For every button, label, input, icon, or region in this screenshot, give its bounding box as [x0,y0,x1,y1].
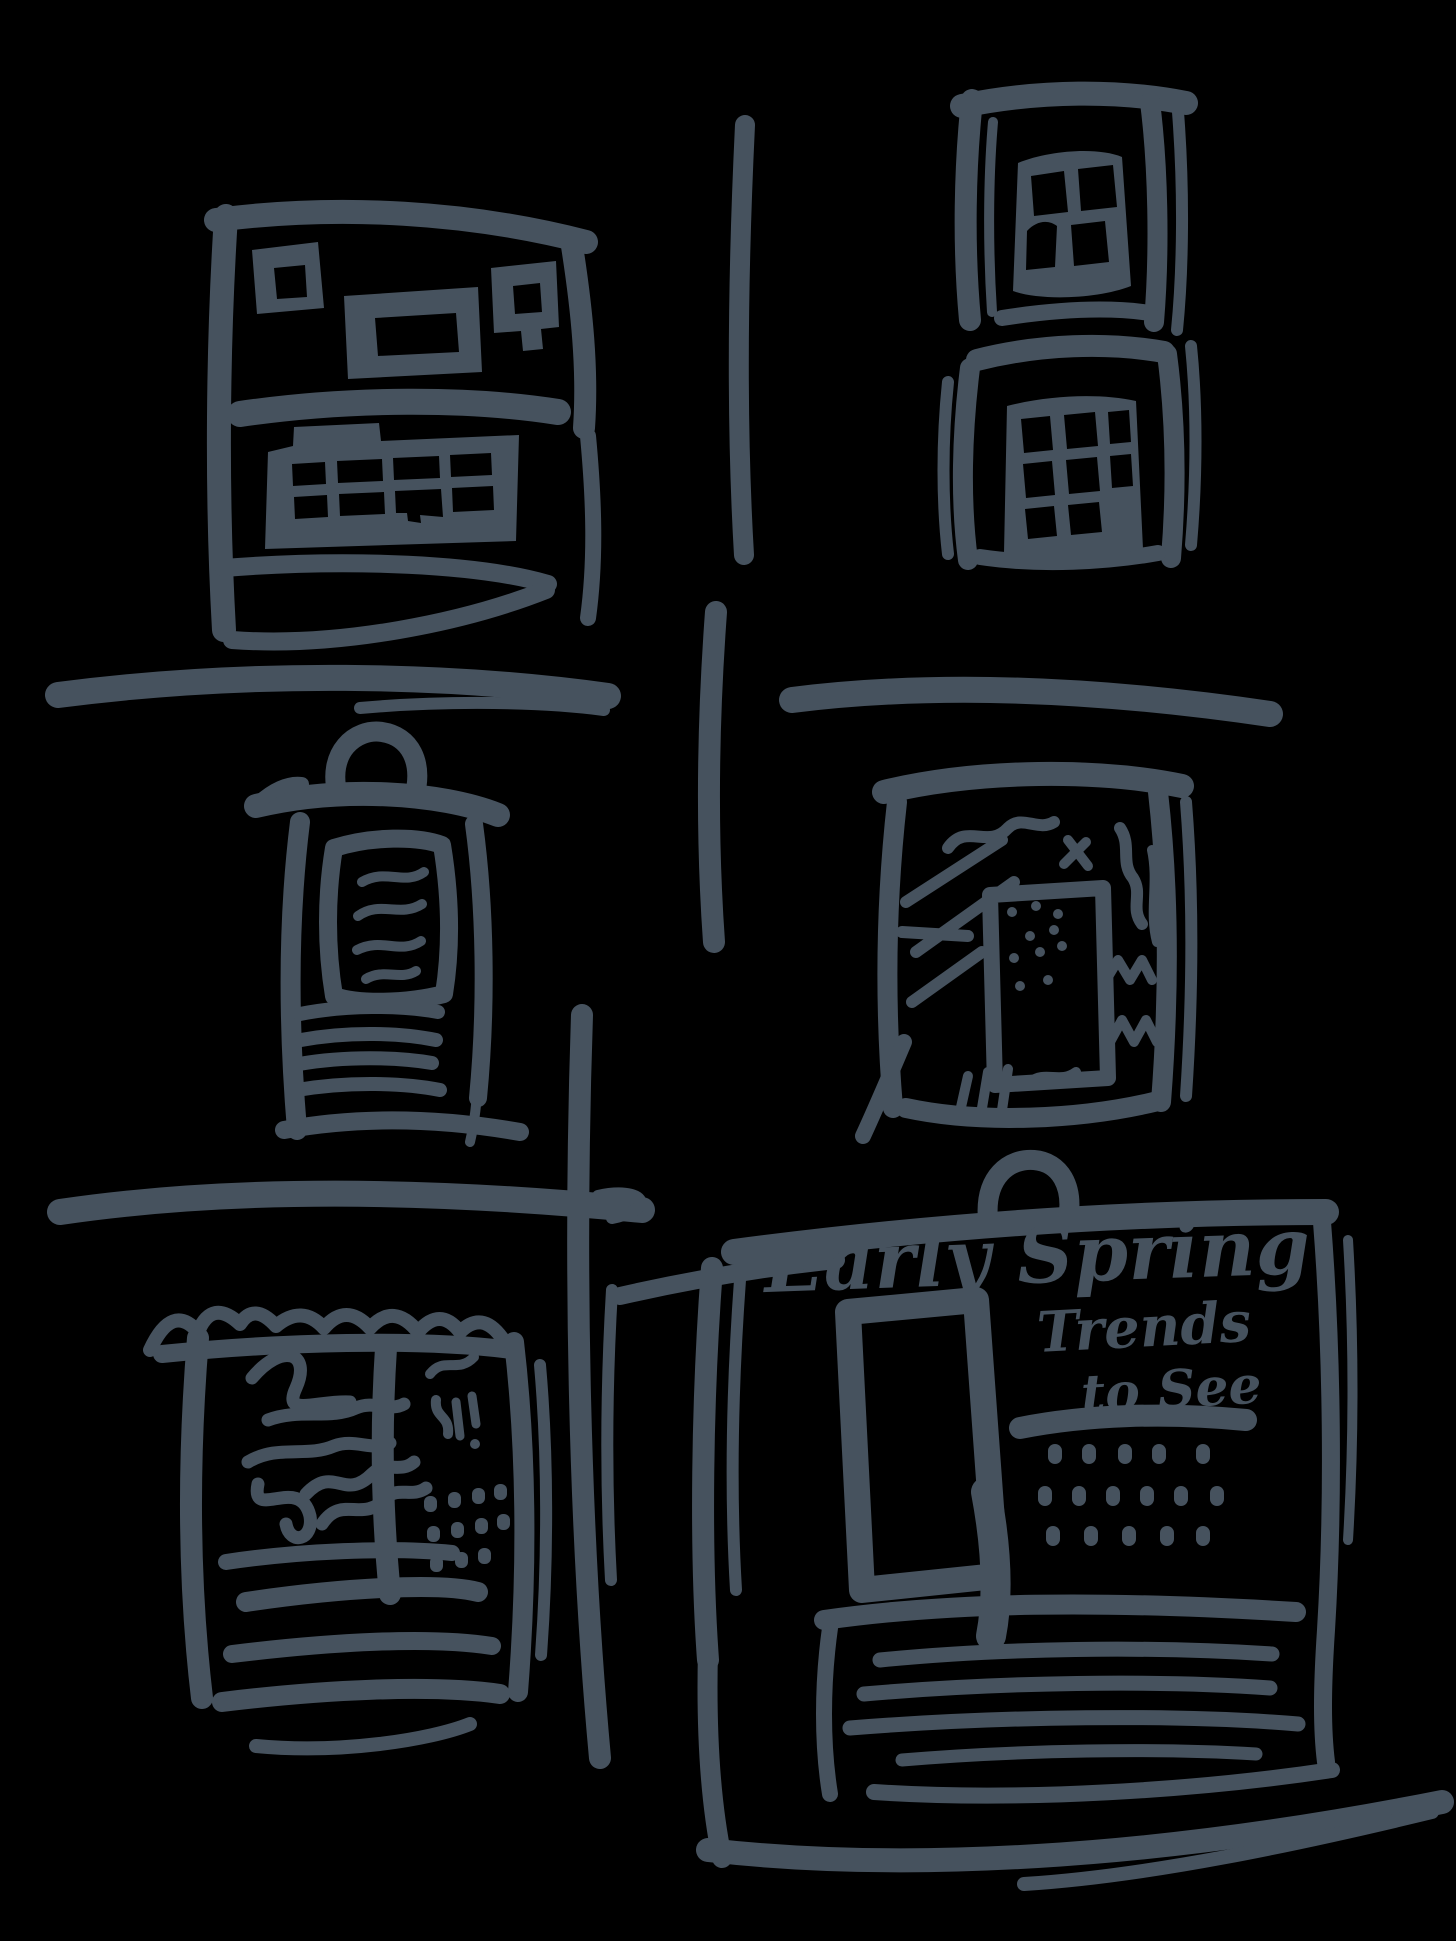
card-left-edge-double [989,122,993,312]
window-grid-2x2 [1013,151,1131,297]
dot-rows [1038,1444,1224,1546]
moodboard-center-card [990,888,1108,1085]
board-right-edge [514,1342,524,1692]
board-right-edge [1158,792,1167,1102]
board-top-bar [162,1343,512,1354]
board-left-edge [191,1338,202,1698]
frame-bottom-stroke-2 [232,590,546,641]
board-top-edge [884,774,1182,792]
card-bottom-edge [874,1770,1332,1796]
right-column-squiggles [430,1357,480,1449]
grid-dividers [58,125,1270,1758]
board-bottom-edge [906,1101,1158,1118]
grid-card-upper [962,94,1186,330]
sketch-stacked-grid-cards-wireframe [944,94,1196,562]
subhead-bar [1020,1416,1246,1428]
card-left-edge-double [944,382,949,554]
frame-right-edge-lower [588,436,593,618]
tag-top-bar [256,794,498,815]
layout-right-edge [1322,1222,1331,1762]
vertical-divider-bottom-double [607,1290,612,1580]
card-left-edge [824,1628,830,1794]
placeholder-square-left-icon [252,242,324,314]
tag-right-edge [474,824,484,1098]
grid-card-lower [944,346,1196,562]
horizontal-divider-left-1-double [360,703,604,710]
sketch-sheet: Early Spring Trends to See [0,0,1456,1941]
vertical-divider-middle [709,612,716,942]
vertical-divider-top [739,125,745,555]
layout-right-edge-double [1348,1240,1353,1540]
sketch-header-table-wireframe [216,212,593,642]
frame-middle-bar [240,402,558,414]
horizontal-divider-left-1 [58,678,608,696]
card-text-line [880,1649,1272,1660]
sketch-hanging-tag-wireframe [256,732,520,1142]
horizontal-divider-right-1 [792,690,1270,714]
window-grid-3x3 [1004,396,1143,558]
sketch-scalloped-board-wireframe [150,1313,546,1749]
layout-left-edge-lower [708,1650,722,1858]
frame-bottom-stroke-1 [224,563,548,584]
sketch-moodboard-wireframe [863,774,1191,1136]
image-placeholder-scribble [357,872,424,979]
wireframe-sketch-canvas: Early Spring Trends to See [0,0,1456,1941]
card-text-line [902,1751,1256,1760]
card-top-edge [977,346,1164,360]
vertical-divider-bottom [578,1015,600,1758]
cursive-doodle-scribble [248,1355,426,1537]
horizontal-divider-left-2 [60,1194,642,1212]
card-left-edge [966,100,972,320]
frame-right-edge [572,246,585,428]
card-right-edge [1167,354,1174,558]
card-text-line [864,1683,1270,1694]
frame-top-edge [216,212,586,242]
lined-text-card [824,1604,1332,1795]
board-right-edge-double [540,1365,546,1655]
table-grid [265,423,519,549]
placeholder-flag-right-icon [491,261,559,351]
card-right-edge-double [1177,112,1182,330]
layout-left-edge [703,1268,712,1660]
board-right-edge-double [1186,802,1191,1096]
placeholder-rect-center-icon [344,287,482,379]
hero-image-placeholder [848,1300,996,1590]
moodboard-center-dots [1007,901,1067,991]
card-left-edge [963,368,970,560]
layout-left-edge-double [733,1280,740,1590]
bottom-text-lines [222,1587,500,1748]
card-top-edge [824,1604,1296,1620]
card-right-edge-double [1191,346,1196,545]
headline-handwriting-line2: Trends [1035,1289,1252,1366]
card-right-edge [1150,102,1157,322]
mid-text-line [226,1550,452,1562]
sketch-early-spring-layout: Early Spring Trends to See [620,1160,1442,1884]
card-text-line [850,1718,1298,1728]
card-bottom-edge [1002,310,1150,318]
